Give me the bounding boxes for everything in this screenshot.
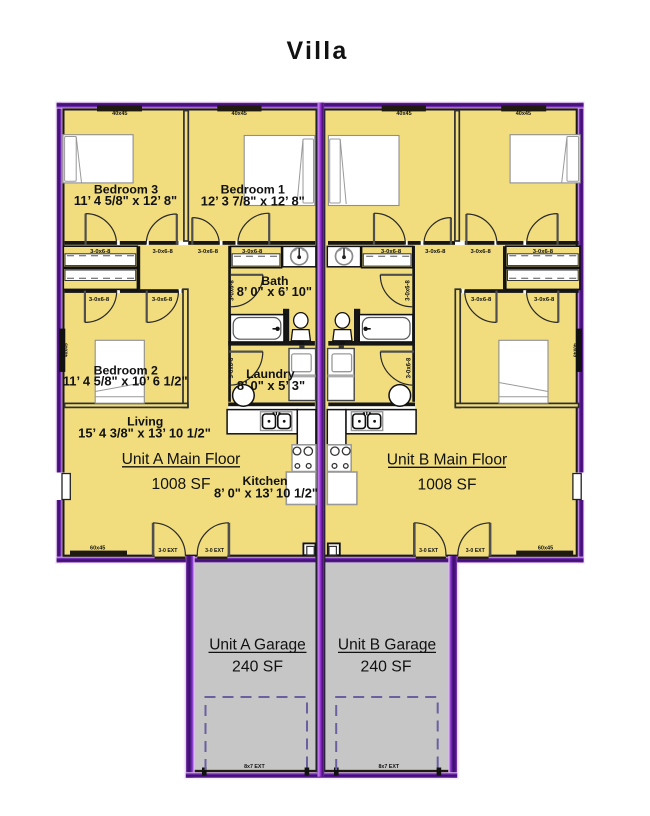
- svg-text:3-0x6-8: 3-0x6-8: [242, 249, 263, 255]
- svg-text:Unit A Garage: Unit A Garage: [209, 637, 306, 654]
- svg-text:240 SF: 240 SF: [232, 659, 283, 676]
- svg-text:40x45: 40x45: [112, 111, 127, 117]
- svg-text:3-0x6-8: 3-0x6-8: [533, 249, 554, 255]
- svg-text:3-0x6-8: 3-0x6-8: [425, 249, 446, 255]
- svg-text:3-0x6-8: 3-0x6-8: [406, 280, 412, 301]
- svg-text:3-0x6-8: 3-0x6-8: [534, 297, 555, 303]
- svg-text:8’ 0" x 6’ 10": 8’ 0" x 6’ 10": [237, 284, 312, 299]
- svg-text:1008 SF: 1008 SF: [418, 477, 477, 494]
- svg-text:Villa: Villa: [287, 37, 349, 65]
- svg-text:40x45: 40x45: [64, 343, 70, 357]
- svg-text:3-0x6-8: 3-0x6-8: [152, 297, 173, 303]
- svg-text:Unit B Main Floor: Unit B Main Floor: [387, 452, 507, 469]
- svg-text:3-0 EXT: 3-0 EXT: [158, 548, 178, 554]
- svg-text:1008 SF: 1008 SF: [152, 476, 211, 493]
- svg-text:3-0x6-8: 3-0x6-8: [471, 297, 492, 303]
- svg-text:3-0x6-8: 3-0x6-8: [230, 280, 236, 301]
- svg-text:3-0x6-8: 3-0x6-8: [229, 357, 235, 378]
- svg-text:3-0 EXT: 3-0 EXT: [466, 548, 486, 554]
- svg-text:60x45: 60x45: [90, 545, 105, 551]
- svg-text:3-0x6-8: 3-0x6-8: [470, 249, 491, 255]
- svg-text:11’ 4 5/8" x 12’ 8": 11’ 4 5/8" x 12’ 8": [74, 193, 177, 208]
- svg-text:3-0x6-8: 3-0x6-8: [90, 249, 111, 255]
- svg-text:8’ 0" x 5’ 3": 8’ 0" x 5’ 3": [237, 378, 305, 393]
- svg-text:11’ 4 5/8" x 10’ 6 1/2": 11’ 4 5/8" x 10’ 6 1/2": [63, 374, 188, 389]
- svg-text:40x45: 40x45: [232, 111, 247, 117]
- svg-text:60x45: 60x45: [538, 545, 553, 551]
- svg-text:8x7 EXT: 8x7 EXT: [244, 764, 265, 770]
- svg-text:3-0x6-8: 3-0x6-8: [198, 249, 219, 255]
- svg-text:3-0 EXT: 3-0 EXT: [205, 548, 225, 554]
- svg-text:Unit A Main Floor: Unit A Main Floor: [122, 451, 241, 468]
- svg-text:3-0x6-8: 3-0x6-8: [406, 357, 412, 378]
- svg-text:15’ 4 3/8" x 13’ 10 1/2": 15’ 4 3/8" x 13’ 10 1/2": [78, 426, 211, 441]
- svg-text:3-0x6-8: 3-0x6-8: [89, 297, 110, 303]
- svg-text:40x45: 40x45: [516, 111, 531, 117]
- svg-text:8x7 EXT: 8x7 EXT: [378, 764, 399, 770]
- svg-text:12’ 3 7/8" x 12’ 8": 12’ 3 7/8" x 12’ 8": [201, 193, 305, 208]
- svg-text:40x45: 40x45: [396, 111, 411, 117]
- svg-text:3-0x6-8: 3-0x6-8: [152, 249, 173, 255]
- svg-text:8’ 0" x 13’ 10 1/2": 8’ 0" x 13’ 10 1/2": [214, 486, 318, 501]
- svg-text:Unit B Garage: Unit B Garage: [338, 637, 436, 654]
- svg-text:40x45: 40x45: [572, 343, 578, 357]
- svg-text:3-0x6-8: 3-0x6-8: [381, 249, 402, 255]
- svg-text:240 SF: 240 SF: [361, 659, 412, 676]
- svg-text:3-0 EXT: 3-0 EXT: [419, 548, 439, 554]
